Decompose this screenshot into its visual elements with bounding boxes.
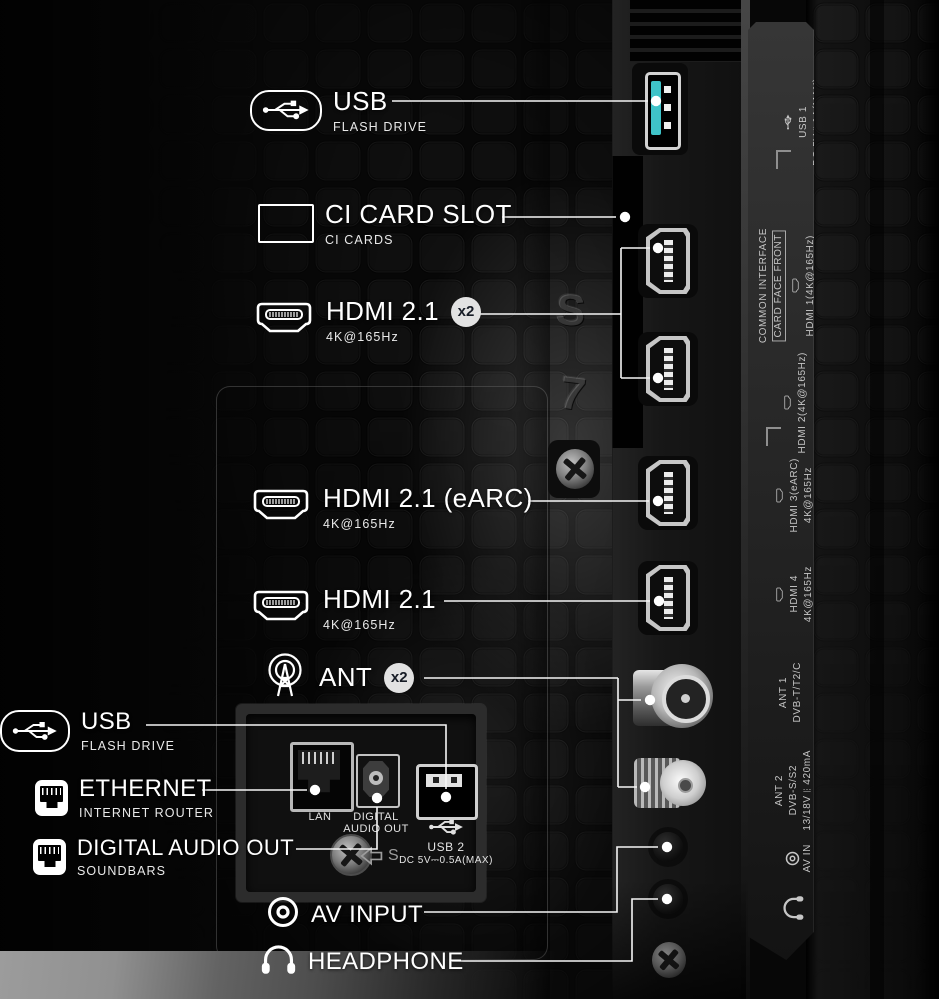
screw — [556, 449, 594, 489]
headphone-jack — [653, 884, 683, 914]
hdmi-icon — [772, 577, 787, 611]
annotation-title: HDMI 2.1 — [326, 296, 439, 327]
screw-bottom — [652, 942, 686, 978]
hdmi-icon — [250, 588, 312, 628]
annotation-subtitle: FLASH DRIVE — [81, 739, 175, 753]
usb2-notch — [451, 777, 457, 783]
ant1-connector-pin — [681, 694, 690, 703]
annotation-text: HDMI 2.1 4K@165Hz — [323, 584, 436, 632]
annotation-title: USB — [333, 86, 427, 117]
usb2-label: USB 2 — [418, 840, 474, 854]
usb-icon — [250, 90, 322, 131]
strip-text: USB 1 — [798, 106, 810, 138]
annotation-ci-card-slot: CI CARD SLOT CI CARDS — [258, 199, 512, 247]
usb2-notch — [433, 777, 439, 783]
strip-text: 13/18V⎓420mA — [802, 750, 814, 831]
annotation-title: HEADPHONE — [308, 948, 464, 976]
antenna-icon — [262, 650, 308, 705]
strip-text: ANT 2 — [774, 775, 786, 806]
strip-text: ANT 1 — [778, 677, 790, 708]
annotation-text: DIGITAL AUDIO OUT SOUNDBARS — [77, 835, 294, 878]
annotation-hdmi-earc: HDMI 2.1 (eARC) 4K@165Hz — [250, 483, 533, 531]
strip-text: DVB-S/S2 — [788, 765, 800, 815]
strip-bracket — [766, 427, 781, 446]
annotation-title: AV INPUT — [311, 901, 423, 929]
annotation-title: ETHERNET — [79, 775, 214, 803]
digital-audio-out-label-line1: DIGITAL — [353, 811, 398, 823]
annotation-text: ANT x2 — [319, 662, 414, 693]
strip-text: DVB-T/T2/C — [792, 662, 804, 722]
optical-port-lens-hole — [373, 775, 379, 781]
annotation-subtitle: 4K@165Hz — [323, 618, 436, 632]
ci-card-icon — [258, 204, 314, 243]
ethernet-port-icon — [35, 780, 68, 816]
hdmi-icon — [253, 300, 315, 340]
strip-text: HDMI 2(4K@165Hz) — [797, 352, 809, 453]
annotation-title: HDMI 2.1 — [323, 584, 436, 615]
strip-headphone-icon — [780, 894, 806, 922]
strip-text: 4K@165Hz — [803, 566, 815, 622]
annotation-title: DIGITAL AUDIO OUT — [77, 835, 294, 861]
strip-text: HDMI 4 — [789, 575, 801, 613]
av-icon — [784, 850, 800, 866]
strip-label-hdmi4: HDMI 4 4K@165Hz — [772, 566, 815, 622]
annotation-hdmi4: HDMI 2.1 4K@165Hz — [250, 584, 436, 632]
strip-label-av-in: AV IN — [784, 844, 814, 872]
strip-label-hdmi3: HDMI 3(eARC) 4K@165Hz — [772, 458, 815, 532]
hdmi-icon — [250, 487, 312, 527]
annotation-av-input: AV INPUT — [266, 895, 423, 934]
usb-icon — [780, 104, 796, 140]
annotation-hdmi-x2: HDMI 2.1 x2 4K@165Hz — [253, 296, 481, 344]
annotation-text: USB FLASH DRIVE — [333, 86, 427, 134]
tv-rear-ports-diagram: S 7 — [0, 0, 939, 999]
hdmi3-port — [638, 456, 698, 530]
annotation-ethernet: ETHERNET INTERNET ROUTER — [35, 775, 214, 820]
strip-label-ant2: ANT 2 DVB-S/S2 13/18V⎓420mA — [774, 750, 814, 831]
usb2-trident-icon — [428, 818, 464, 841]
digital-audio-port-icon — [33, 839, 66, 875]
annotation-ant: ANT x2 — [262, 650, 414, 705]
annotation-text: USB FLASH DRIVE — [81, 708, 175, 753]
hdmi4-port — [638, 561, 698, 635]
annotation-subtitle: CI CARDS — [325, 233, 512, 247]
vent-slats — [630, 0, 742, 62]
panel-edge-shadow — [918, 0, 939, 999]
hdmi-icon — [788, 269, 803, 303]
usb1-contact — [664, 104, 671, 111]
annotation-usb-top: USB FLASH DRIVE — [250, 86, 427, 134]
annotation-text: CI CARD SLOT CI CARDS — [325, 199, 512, 247]
strip-bracket — [776, 150, 791, 169]
molded-letter-s: S — [555, 285, 587, 336]
annotation-subtitle: SOUNDBARS — [77, 864, 294, 878]
ant2-connector-hole — [678, 778, 693, 793]
annotation-text: HDMI 2.1 x2 4K@165Hz — [326, 296, 481, 344]
strip-text: HDMI 3(eARC) — [789, 458, 801, 532]
annotation-title: CI CARD SLOT — [325, 199, 512, 230]
x2-badge: x2 — [451, 297, 481, 327]
usb1-contact — [664, 86, 671, 93]
annotation-subtitle: INTERNET ROUTER — [79, 806, 214, 820]
annotation-subtitle: FLASH DRIVE — [333, 120, 427, 134]
strip-label-ant1: ANT 1 DVB-T/T2/C — [778, 662, 804, 722]
panel-seam — [870, 0, 884, 999]
annotation-title: HDMI 2.1 (eARC) — [323, 483, 533, 514]
annotation-title: USB — [81, 708, 175, 736]
hdmi-icon — [780, 386, 795, 420]
annotation-text: ETHERNET INTERNET ROUTER — [79, 775, 214, 820]
left-arrow-icon — [360, 845, 384, 867]
strip-label-common-interface: COMMON INTERFACE CARD FACE FRONT HDMI 1(… — [758, 228, 817, 343]
av-in-jack — [653, 832, 683, 862]
usb2-power-label: DC 5V⎓0.5A(MAX) — [397, 855, 495, 866]
av-input-icon — [266, 895, 300, 934]
strip-label-hdmi2: HDMI 2(4K@165Hz) — [780, 352, 809, 453]
annotation-digital-audio-out: DIGITAL AUDIO OUT SOUNDBARS — [33, 835, 294, 878]
lan-port-pins — [302, 752, 336, 764]
hdmi1-port — [638, 224, 698, 298]
headphone-icon — [780, 894, 806, 922]
strip-text: COMMON INTERFACE — [758, 228, 770, 343]
usb1-port-tongue — [651, 81, 661, 135]
annotation-headphone: HEADPHONE — [260, 942, 464, 981]
s-mark: S — [388, 847, 399, 865]
headphone-icon — [260, 942, 297, 981]
strip-text: AV IN — [802, 844, 814, 872]
annotation-subtitle: 4K@165Hz — [323, 517, 533, 531]
molded-arrow-s: S — [360, 845, 399, 867]
usb2-port — [416, 764, 478, 820]
strip-text: 4K@165Hz — [803, 467, 815, 523]
digital-audio-out-label: DIGITAL AUDIO OUT — [330, 811, 422, 835]
port-label-strip: USB 1 DC 5V⎓1A(MAX) COMMON INTERFACE CAR… — [748, 22, 814, 960]
usb-icon — [0, 710, 70, 752]
x2-badge: x2 — [384, 663, 414, 693]
annotation-text: HDMI 2.1 (eARC) 4K@165Hz — [323, 483, 533, 531]
annotation-title: ANT — [319, 662, 372, 693]
hdmi-icon — [772, 478, 787, 512]
strip-text-boxed: CARD FACE FRONT — [772, 230, 786, 341]
hdmi2-port — [638, 332, 698, 406]
annotation-usb-side: USB FLASH DRIVE — [0, 708, 175, 753]
usb1-contact — [664, 122, 671, 129]
annotation-subtitle: 4K@165Hz — [326, 330, 481, 344]
